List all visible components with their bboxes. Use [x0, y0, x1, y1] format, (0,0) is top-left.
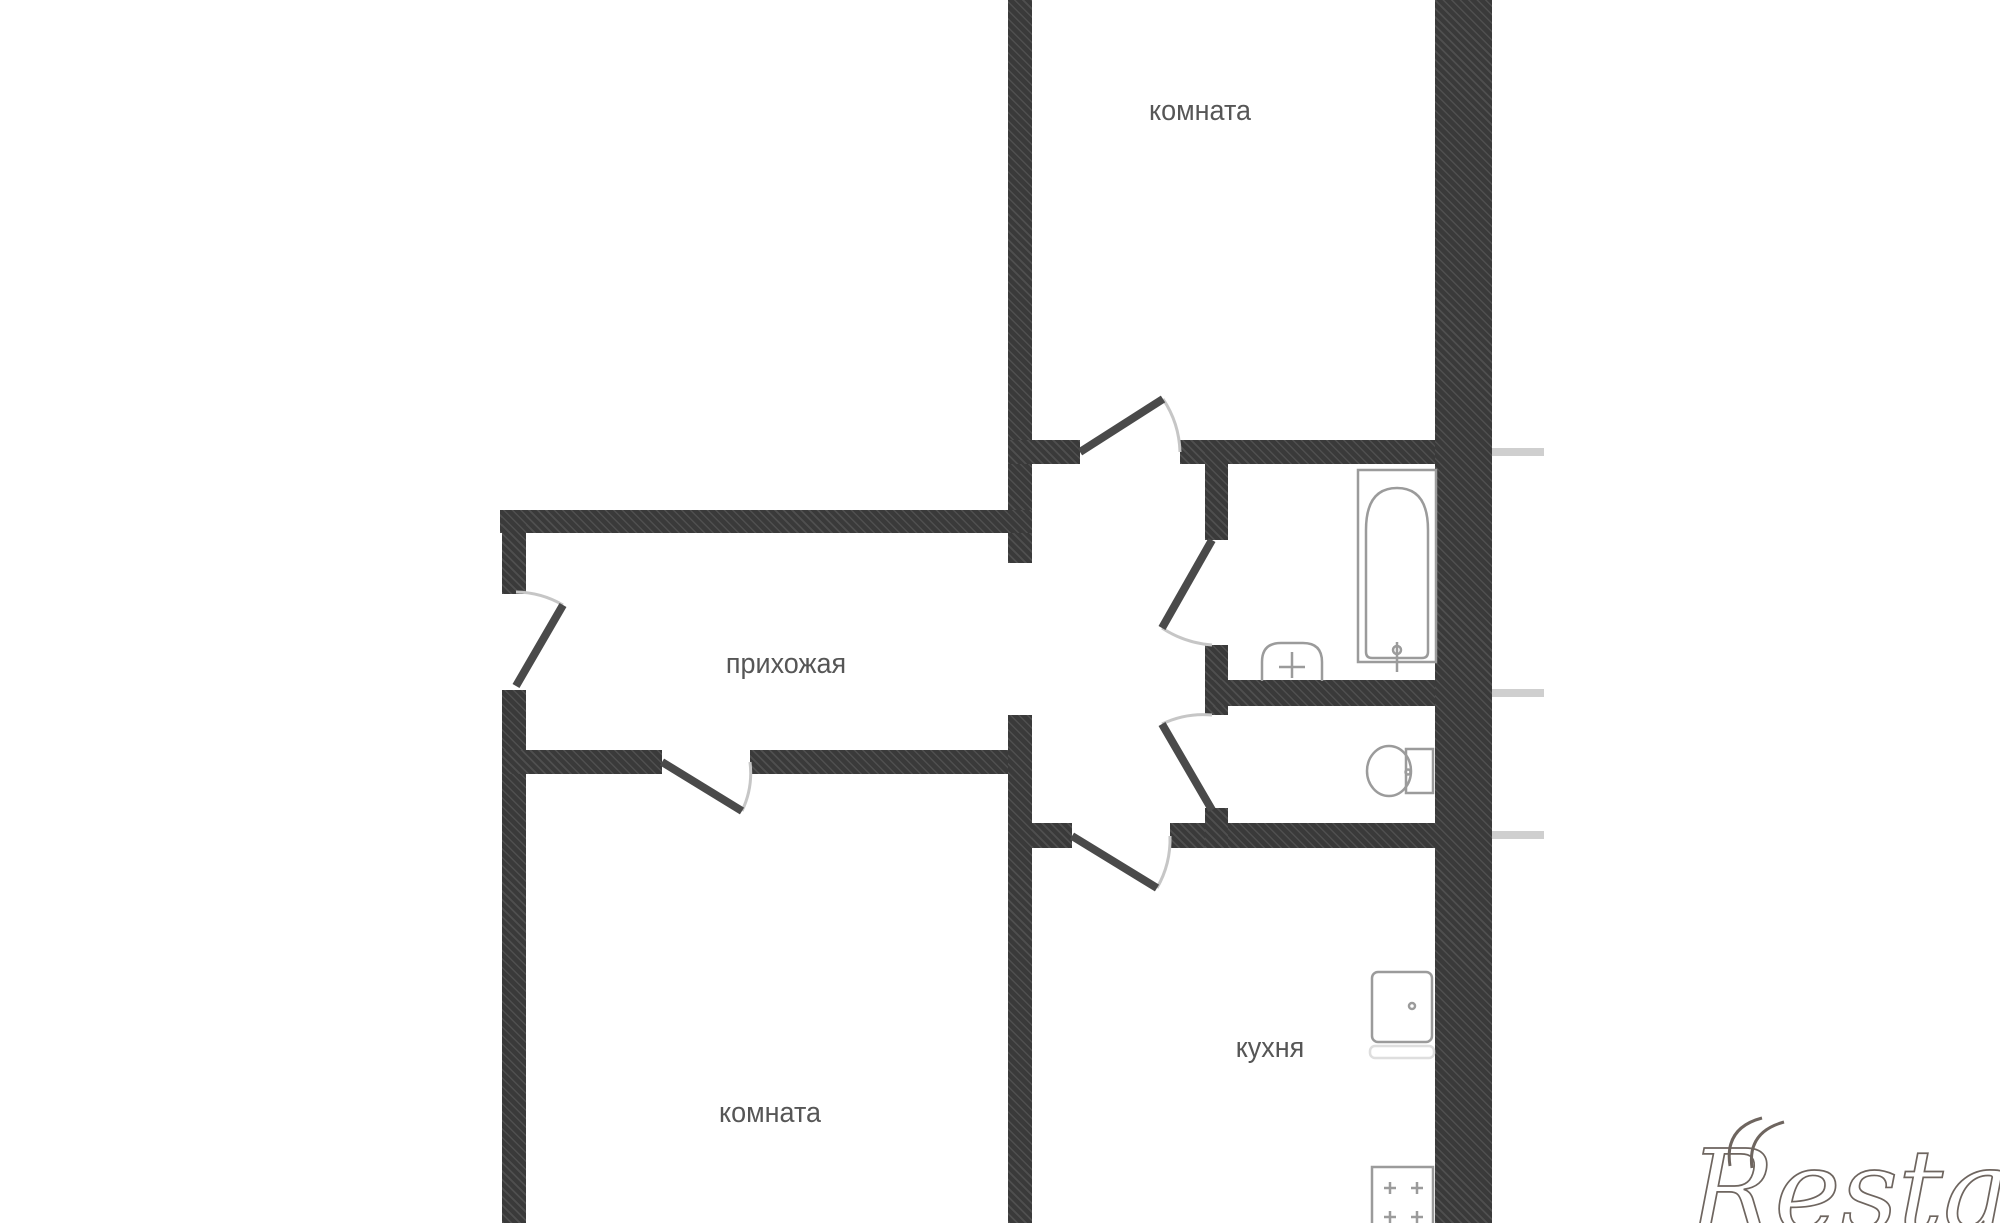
bathtub-icon	[1358, 470, 1436, 672]
toilet-icon	[1367, 746, 1433, 796]
bottom-room-door-arc	[742, 762, 751, 811]
kitchen-sink-icon	[1370, 972, 1434, 1058]
top-room-door-icon	[1080, 399, 1163, 452]
bathroom-door-icon	[1162, 540, 1212, 628]
kitchen-door-arc	[1157, 836, 1170, 888]
bottom-room-door-icon	[662, 762, 742, 811]
entry-door-arc	[516, 592, 563, 605]
floor-plan-canvas: Restate комната прихожая комната кухня	[0, 0, 2000, 1223]
entry-door-icon	[516, 605, 563, 686]
room-label-hallway: прихожая	[684, 648, 889, 681]
toilet-door-icon	[1162, 724, 1212, 810]
toilet-door-arc	[1162, 715, 1212, 724]
restate-watermark: Restate	[1688, 1118, 2000, 1223]
bathroom-sink-icon	[1262, 643, 1322, 681]
watermark-text: Restate	[1688, 1127, 2000, 1223]
room-label-kitchen: кухня	[1168, 1032, 1373, 1065]
room-label-top-room: комната	[1098, 95, 1303, 128]
bathroom-door-arc	[1162, 628, 1212, 645]
room-label-bottom-room: комната	[668, 1097, 873, 1130]
plan-linework: Restate	[0, 0, 2000, 1223]
kitchen-door-icon	[1072, 836, 1157, 888]
top-room-door-arc	[1163, 399, 1180, 452]
stove-icon	[1372, 1167, 1433, 1223]
